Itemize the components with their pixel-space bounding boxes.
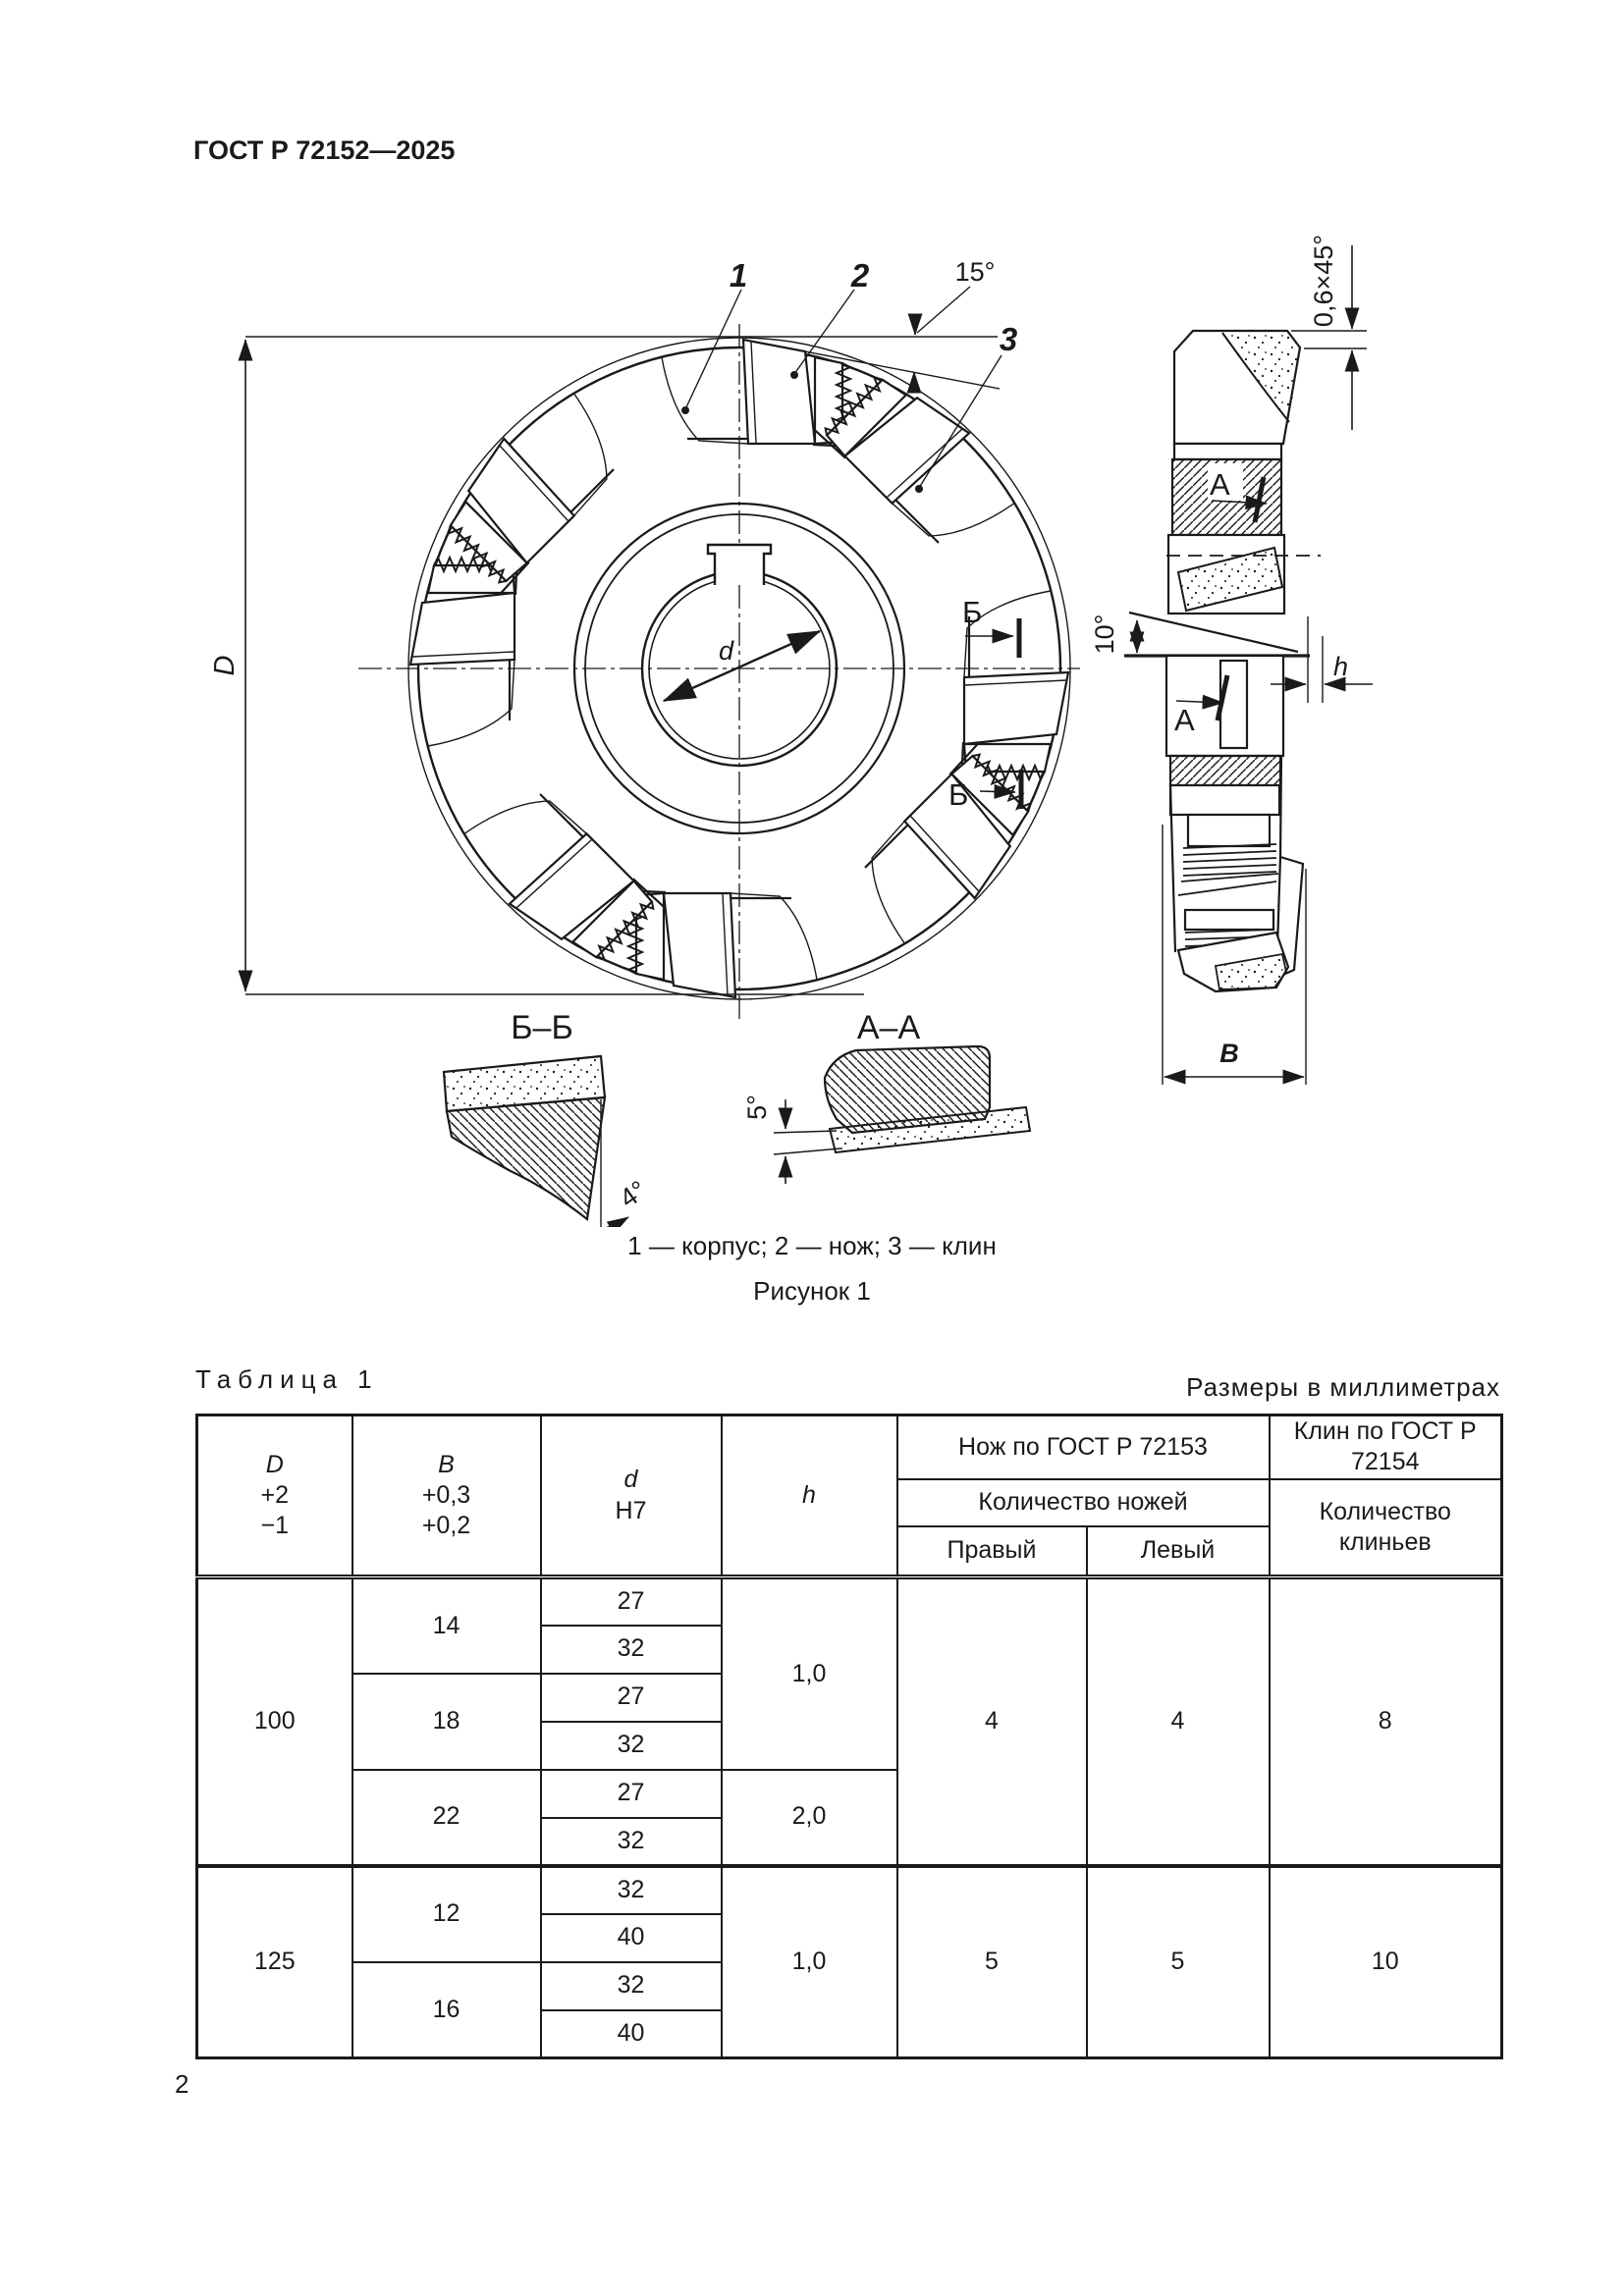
col-header-h: h — [722, 1415, 897, 1577]
angle-4-label: 4° — [615, 1175, 652, 1213]
front-view: d D 15° 1 2 3 Б Б — [209, 257, 1080, 1021]
cell-D-100: 100 — [197, 1577, 352, 1866]
cell-left-count: 4 — [1087, 1577, 1270, 1866]
col-header-knife-count: Количество ножей — [897, 1479, 1270, 1526]
section-a-mark-top: А — [1210, 467, 1230, 502]
section-aa-title: А–А — [857, 1009, 921, 1046]
section-b-mark-top: Б — [962, 595, 982, 629]
table-row: 125 12 32 1,0 5 5 10 — [197, 1866, 1502, 1914]
figure-number: Рисунок 1 — [0, 1276, 1624, 1307]
cell-B-16: 16 — [352, 1962, 541, 2058]
part-3-label: 3 — [1000, 321, 1017, 357]
cell-wedge-count: 10 — [1270, 1866, 1502, 2058]
col-header-B: B +0,3 +0,2 — [352, 1415, 541, 1577]
cell-h: 2,0 — [722, 1770, 897, 1866]
cell-B-22: 22 — [352, 1770, 541, 1866]
section-a-mark-bottom: А — [1174, 703, 1195, 737]
col-header-left: Левый — [1087, 1526, 1270, 1577]
cell-d: 40 — [541, 2010, 722, 2058]
part-1-label: 1 — [730, 257, 747, 294]
dim-d-label: d — [719, 636, 734, 666]
figure-caption: 1 — корпус; 2 — нож; 3 — клин — [0, 1231, 1624, 1261]
cell-d: 40 — [541, 1914, 722, 1962]
cell-d: 32 — [541, 1818, 722, 1866]
angle-10-label: 10° — [1090, 614, 1119, 655]
cell-d: 32 — [541, 1626, 722, 1674]
angle-5-label: 5° — [742, 1095, 772, 1120]
cell-d: 27 — [541, 1770, 722, 1818]
section-bb-title: Б–Б — [511, 1009, 573, 1046]
cell-d: 27 — [541, 1577, 722, 1626]
col-header-knife-group: Нож по ГОСТ Р 72153 — [897, 1415, 1270, 1479]
cell-left-count: 5 — [1087, 1866, 1270, 2058]
cell-d: 32 — [541, 1866, 722, 1914]
chamfer-label: 0,6×45° — [1309, 235, 1338, 327]
cell-B-14: 14 — [352, 1577, 541, 1674]
cell-B-12: 12 — [352, 1866, 541, 1962]
cell-d: 32 — [541, 1722, 722, 1770]
cell-h: 1,0 — [722, 1866, 897, 2058]
table-1: D +2 −1 B +0,3 +0,2 d H7 h Нож по ГОСТ Р… — [195, 1414, 1503, 2059]
table-units-note: Размеры в миллиметрах — [195, 1372, 1500, 1403]
part-2-label: 2 — [850, 257, 870, 294]
cell-wedge-count: 8 — [1270, 1577, 1502, 1866]
cell-B-18: 18 — [352, 1674, 541, 1770]
cell-d: 27 — [541, 1674, 722, 1722]
dim-h-label: h — [1333, 652, 1348, 681]
col-header-D: D +2 −1 — [197, 1415, 352, 1577]
cell-right-count: 4 — [897, 1577, 1087, 1866]
document-page: ГОСТ Р 72152—2025 — [0, 0, 1624, 2296]
cell-h: 1,0 — [722, 1577, 897, 1770]
section-aa-view: А–А 5° — [742, 1009, 1030, 1184]
figure-1-drawing: d D 15° 1 2 3 Б Б — [0, 0, 1624, 1227]
section-bb-view: Б–Б 4° — [444, 1009, 652, 1227]
col-header-d: d H7 — [541, 1415, 722, 1577]
cell-D-125: 125 — [197, 1866, 352, 2058]
dim-D-label: D — [209, 655, 241, 675]
cell-d: 32 — [541, 1962, 722, 2010]
dim-B-label: B — [1219, 1039, 1239, 1068]
side-view: А 10° А — [1090, 235, 1373, 1085]
page-number: 2 — [175, 2069, 189, 2100]
col-header-wedge-count: Количество клиньев — [1270, 1479, 1502, 1577]
table-row: 100 14 27 1,0 4 4 8 — [197, 1577, 1502, 1626]
col-header-wedge-group: Клин по ГОСТ Р 72154 — [1270, 1415, 1502, 1479]
col-header-right: Правый — [897, 1526, 1087, 1577]
cell-right-count: 5 — [897, 1866, 1087, 2058]
angle-15-label: 15° — [955, 257, 996, 287]
section-b-mark-bottom: Б — [948, 777, 968, 812]
